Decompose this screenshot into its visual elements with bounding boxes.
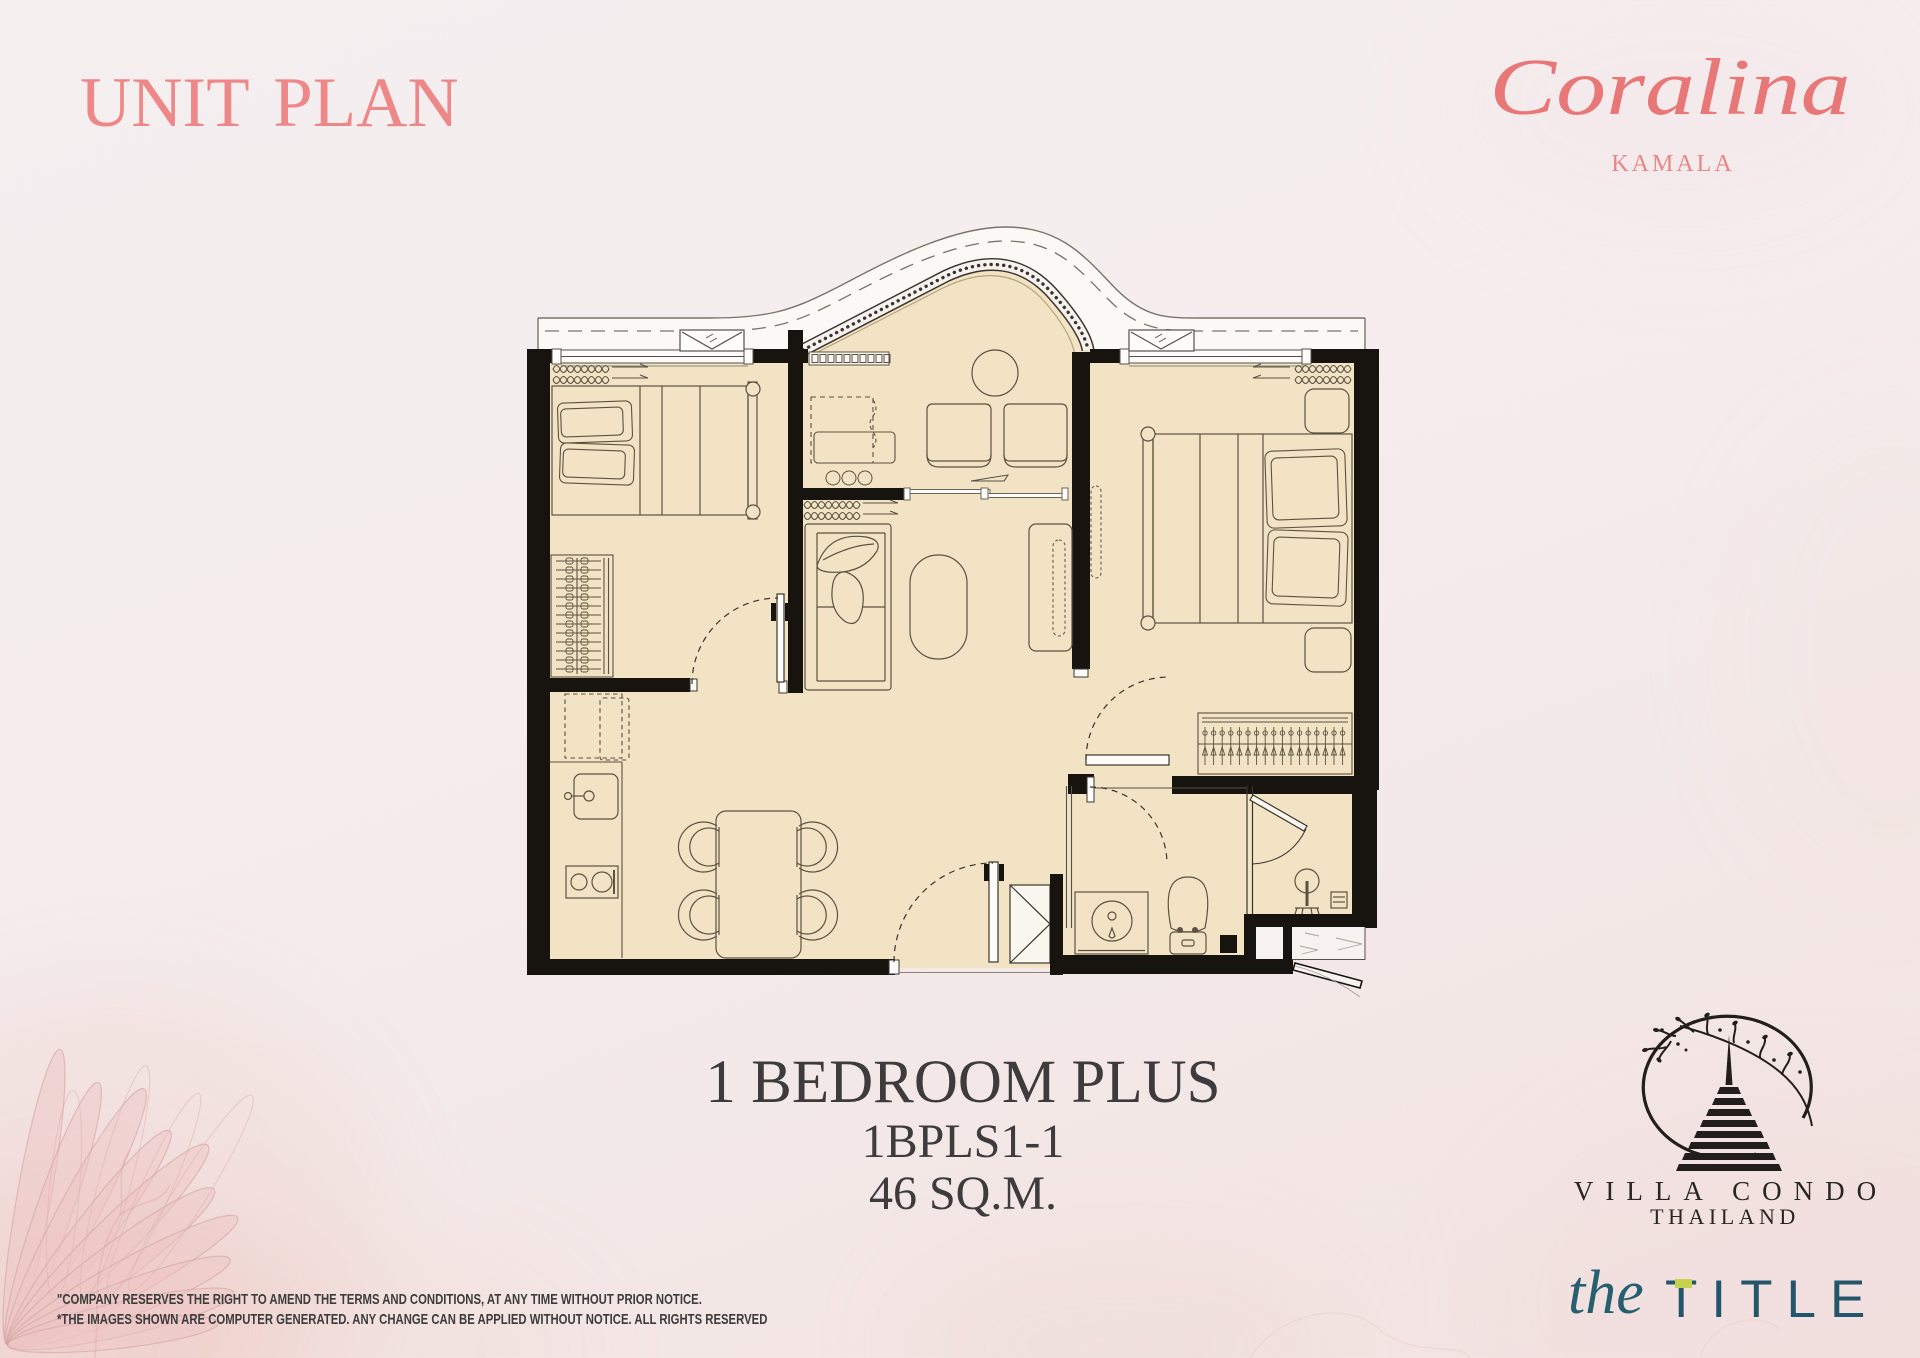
svg-text:THAILAND: THAILAND [1650, 1204, 1800, 1229]
svg-text:VILLA CONDO: VILLA CONDO [1574, 1176, 1888, 1206]
